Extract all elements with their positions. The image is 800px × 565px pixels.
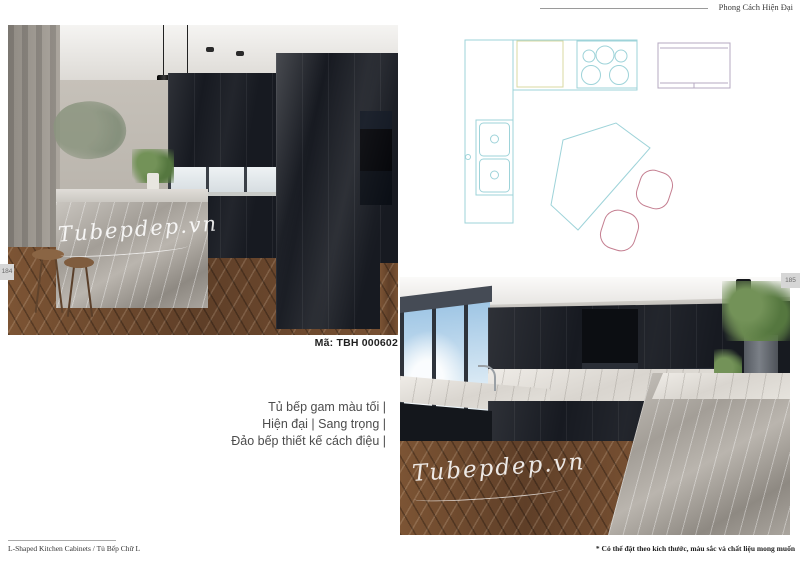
plan-chairs	[597, 167, 676, 255]
plant-vase	[147, 173, 159, 190]
plan-counters	[465, 40, 650, 230]
footer-note: * Có thể đặt theo kích thước, màu sắc và…	[596, 544, 795, 553]
footer-rule	[8, 540, 116, 541]
ceiling-spotlight	[206, 47, 214, 52]
island-top	[652, 373, 790, 399]
plan-sink	[517, 41, 563, 87]
kitchen-photo-secondary: Tubepdep.vn	[400, 277, 790, 535]
floor-plan-drawing	[452, 25, 792, 285]
description-line: Đảo bếp thiết kế cách điệu |	[150, 433, 386, 450]
faucet	[478, 365, 496, 391]
range-hood	[582, 309, 638, 369]
description-line: Hiện đại | Sang trọng |	[150, 416, 386, 433]
description-line: Tủ bếp gam màu tối |	[150, 399, 386, 416]
upper-cabinets	[168, 73, 276, 169]
plan-refrigerator	[658, 43, 730, 88]
cabinet-reflection	[276, 53, 398, 329]
hanging-plant	[722, 281, 790, 341]
pendant-cord	[163, 25, 164, 77]
header-category-label: Phong Cách Hiện Đại	[719, 2, 793, 12]
plan-island	[551, 123, 650, 230]
page-tab-left: 184	[0, 264, 14, 280]
kitchen-photo-main: Tubepdep.vn	[8, 25, 398, 335]
ceiling-spotlight	[236, 51, 244, 56]
page-tab-right: 185	[781, 273, 800, 288]
product-description: Tủ bếp gam màu tối | Hiện đại | Sang trọ…	[150, 399, 386, 450]
floor-plan	[452, 25, 792, 285]
island-top	[56, 189, 208, 202]
product-code: Mã: TBH 000602	[8, 337, 398, 349]
footer-category: L-Shaped Kitchen Cabinets / Tủ Bếp Chữ L	[8, 544, 140, 553]
curtain	[8, 25, 60, 265]
header-rule	[540, 8, 708, 9]
catalog-page: Phong Cách Hiện Đại 184 185	[0, 0, 800, 565]
stool-seat	[64, 257, 94, 268]
